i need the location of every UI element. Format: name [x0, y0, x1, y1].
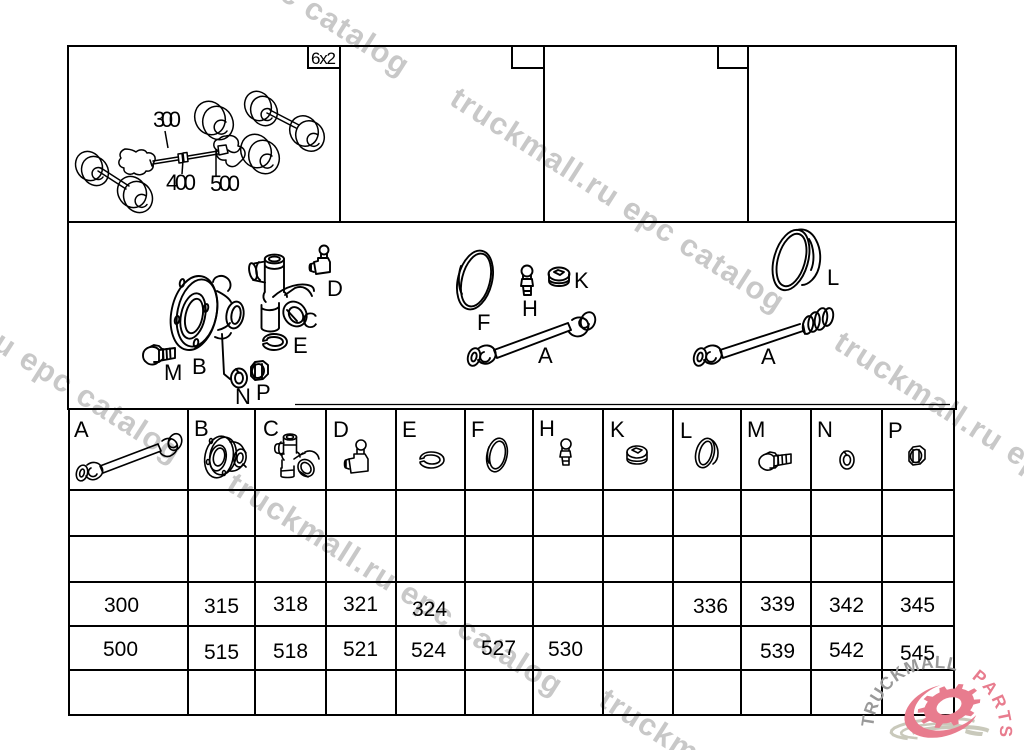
- svg-text:521: 521: [343, 638, 378, 661]
- svg-text:300: 300: [104, 594, 139, 617]
- svg-text:K: K: [574, 268, 589, 293]
- svg-text:K: K: [610, 417, 625, 442]
- svg-text:500: 500: [210, 171, 240, 196]
- svg-text:N: N: [817, 417, 833, 442]
- svg-text:A: A: [74, 417, 89, 442]
- svg-text:318: 318: [273, 593, 308, 616]
- svg-text:E: E: [293, 333, 308, 358]
- svg-text:H: H: [522, 296, 538, 321]
- svg-text:515: 515: [204, 641, 239, 664]
- svg-text:D: D: [333, 417, 349, 442]
- svg-text:L: L: [827, 265, 839, 290]
- svg-text:C: C: [302, 308, 318, 333]
- svg-text:400: 400: [166, 170, 196, 195]
- svg-text:6x2: 6x2: [311, 49, 336, 68]
- svg-text:M: M: [747, 417, 765, 442]
- svg-text:542: 542: [829, 639, 864, 662]
- svg-text:500: 500: [103, 638, 138, 661]
- svg-text:B: B: [194, 416, 209, 441]
- svg-text:A: A: [538, 343, 553, 368]
- svg-text:A: A: [761, 344, 776, 369]
- svg-text:524: 524: [411, 639, 446, 662]
- svg-text:530: 530: [548, 638, 583, 661]
- svg-text:C: C: [263, 416, 279, 441]
- svg-text:N: N: [235, 384, 251, 409]
- svg-text:324: 324: [412, 598, 447, 621]
- svg-text:B: B: [192, 354, 207, 379]
- svg-text:545: 545: [900, 642, 935, 665]
- svg-text:518: 518: [273, 640, 308, 663]
- svg-text:P: P: [256, 380, 271, 405]
- svg-text:L: L: [680, 418, 692, 443]
- svg-text:539: 539: [760, 640, 795, 663]
- svg-text:M: M: [164, 360, 182, 385]
- svg-text:truckmall.ru epc catalog: truckmall.ru epc catalog: [444, 80, 792, 320]
- svg-text:F: F: [471, 417, 484, 442]
- svg-text:E: E: [402, 417, 417, 442]
- svg-text:truckmall.ru epc catalog: truckmall.ru epc catalog: [69, 0, 417, 83]
- svg-text:truckmall.ru epc catalog: truckmall.ru epc catalog: [828, 324, 1024, 564]
- svg-text:F: F: [477, 310, 490, 335]
- svg-text:339: 339: [760, 593, 795, 616]
- svg-text:342: 342: [829, 594, 864, 617]
- svg-text:336: 336: [693, 595, 728, 618]
- svg-text:321: 321: [343, 593, 378, 616]
- svg-text:H: H: [539, 416, 555, 441]
- svg-text:D: D: [327, 276, 343, 301]
- svg-text:315: 315: [204, 595, 239, 618]
- svg-text:P: P: [888, 418, 903, 443]
- svg-text:300: 300: [153, 107, 181, 132]
- svg-text:527: 527: [481, 637, 516, 660]
- svg-text:345: 345: [900, 594, 935, 617]
